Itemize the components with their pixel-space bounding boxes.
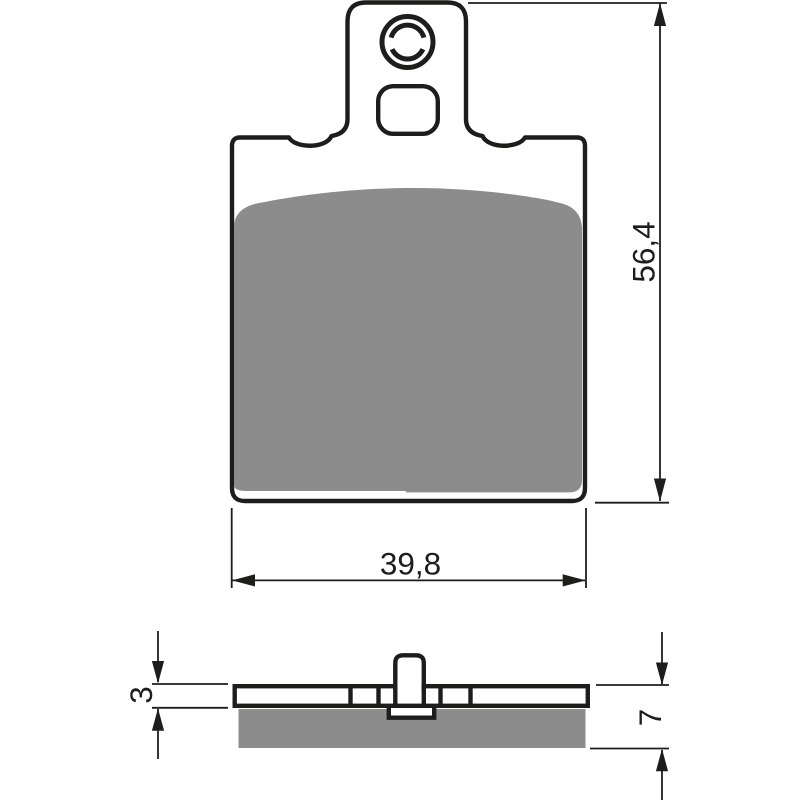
svg-text:7: 7 — [632, 709, 668, 727]
svg-text:3: 3 — [123, 686, 159, 704]
svg-text:56,4: 56,4 — [626, 221, 662, 282]
svg-text:39,8: 39,8 — [380, 546, 441, 582]
